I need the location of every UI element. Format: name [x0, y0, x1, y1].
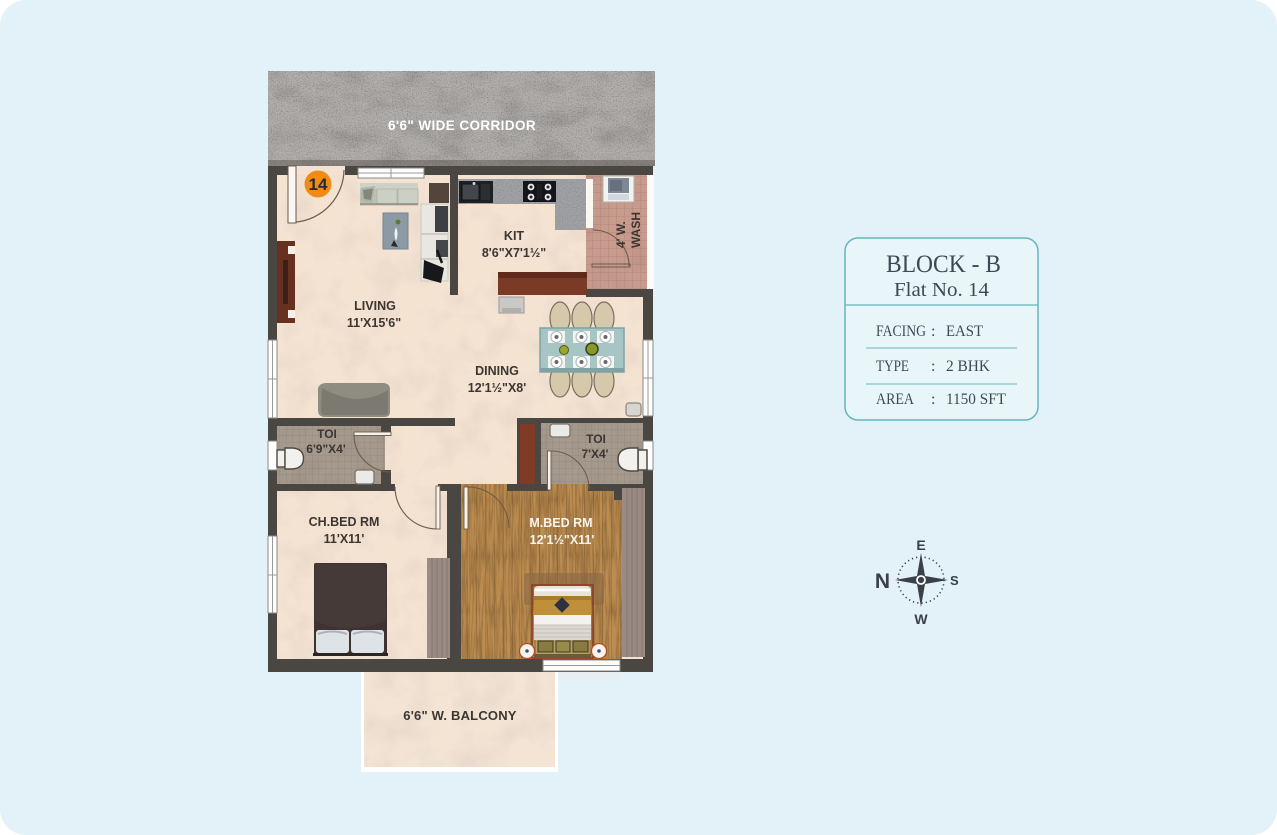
svg-text:WASH: WASH	[629, 212, 643, 248]
svg-text:TOI: TOI	[586, 432, 606, 446]
svg-text:14: 14	[309, 175, 328, 194]
svg-text:N: N	[875, 570, 890, 593]
svg-text:6'6" WIDE CORRIDOR: 6'6" WIDE CORRIDOR	[388, 118, 536, 133]
svg-text:11'X11': 11'X11'	[324, 532, 365, 546]
svg-text:8'6"X7'1½": 8'6"X7'1½"	[482, 246, 546, 260]
svg-text:4' W.: 4' W.	[614, 221, 628, 248]
svg-text::: :	[931, 323, 935, 340]
svg-text:LIVING: LIVING	[354, 299, 396, 313]
svg-text:2 BHK: 2 BHK	[946, 358, 990, 375]
svg-text:TOI: TOI	[317, 427, 337, 441]
svg-text:M.BED RM: M.BED RM	[529, 516, 592, 530]
svg-text:12'1½"X8': 12'1½"X8'	[468, 381, 526, 395]
svg-text:E: E	[916, 537, 925, 553]
svg-text:1150 SFT: 1150 SFT	[946, 391, 1006, 408]
svg-text:W: W	[914, 611, 928, 627]
svg-text:7'X4': 7'X4'	[581, 447, 608, 461]
svg-text:S: S	[950, 573, 959, 588]
svg-text:12'1½"X11': 12'1½"X11'	[530, 533, 595, 547]
svg-text:AREA: AREA	[876, 391, 914, 408]
svg-text::: :	[931, 358, 935, 375]
svg-text:6'9"X4': 6'9"X4'	[306, 442, 346, 456]
svg-text:CH.BED RM: CH.BED RM	[309, 515, 380, 529]
svg-text:DINING: DINING	[475, 364, 519, 378]
svg-text::: :	[931, 391, 935, 408]
svg-text:FACING: FACING	[876, 323, 926, 340]
svg-text:BLOCK - B: BLOCK - B	[886, 251, 1001, 278]
svg-text:6'6" W. BALCONY: 6'6" W. BALCONY	[403, 708, 517, 723]
svg-text:11'X15'6": 11'X15'6"	[347, 316, 401, 330]
svg-text:KIT: KIT	[504, 229, 525, 243]
svg-text:TYPE: TYPE	[876, 358, 909, 375]
svg-text:EAST: EAST	[946, 323, 983, 340]
svg-text:Flat No. 14: Flat No. 14	[894, 279, 989, 301]
